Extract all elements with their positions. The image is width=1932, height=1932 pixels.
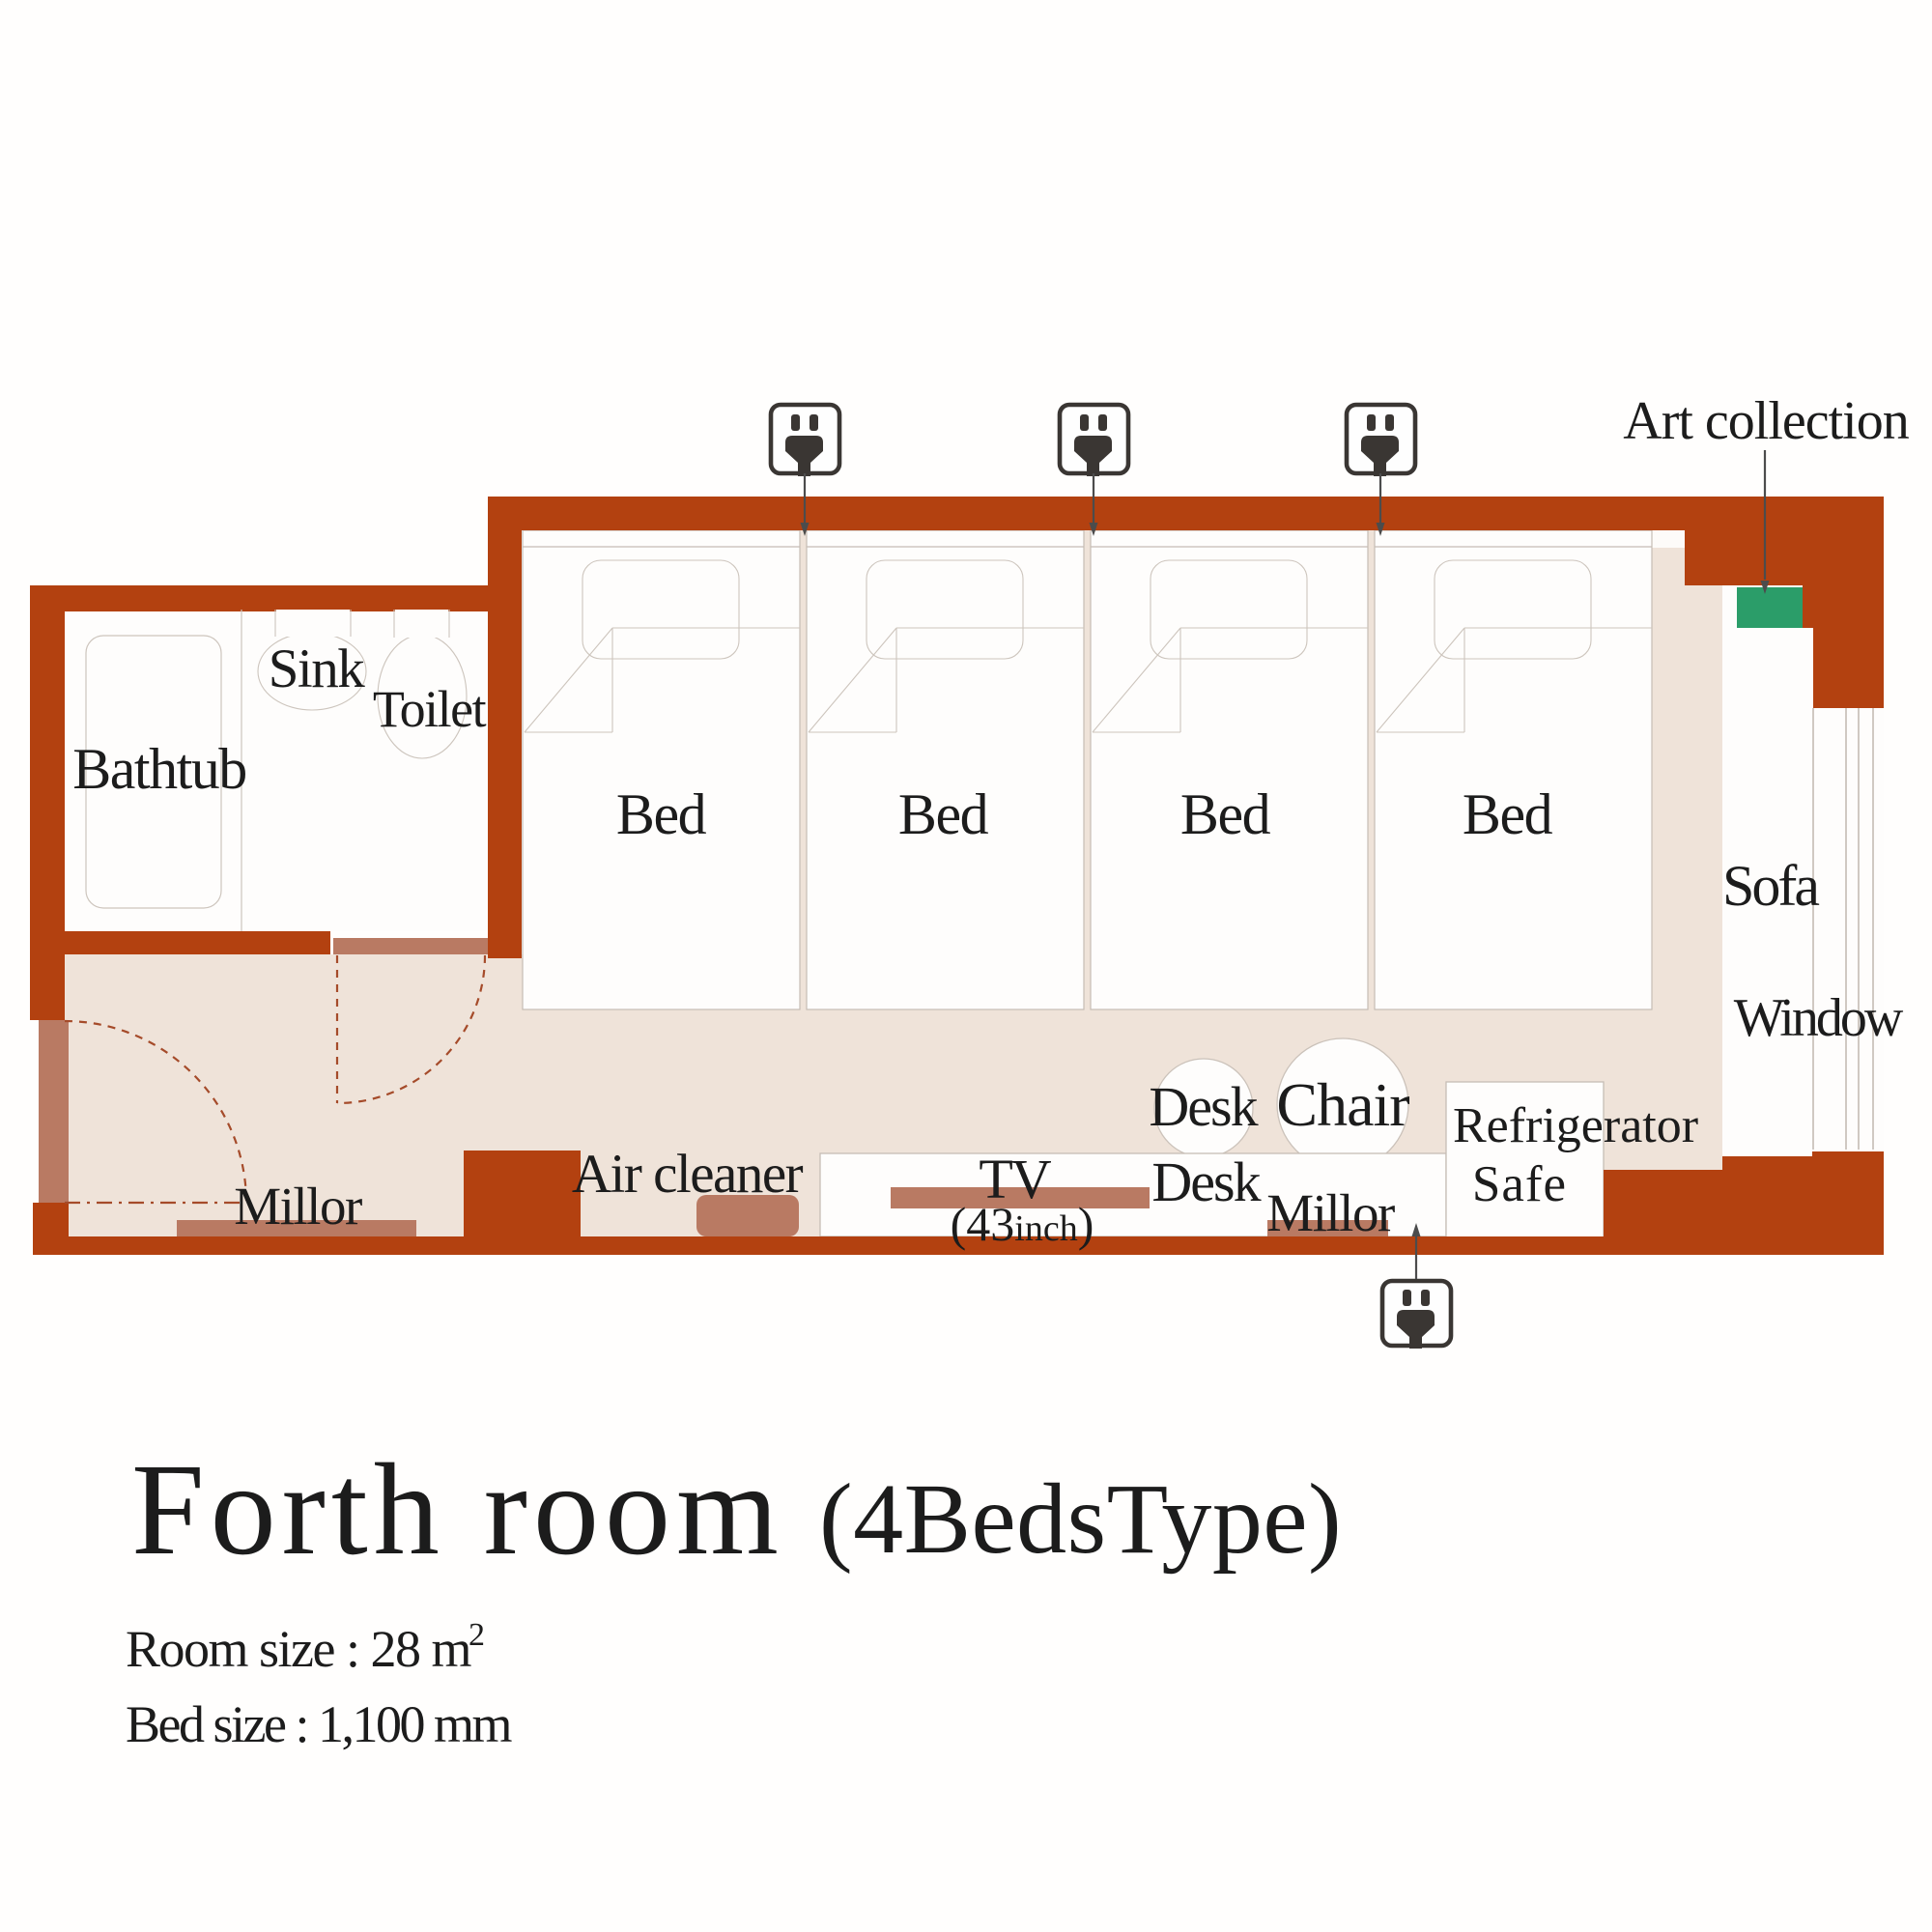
svg-text:Refrigerator: Refrigerator bbox=[1453, 1098, 1698, 1153]
svg-text:Desk: Desk bbox=[1149, 1075, 1258, 1138]
svg-text:Bed: Bed bbox=[1463, 782, 1553, 846]
svg-text:Air cleaner: Air cleaner bbox=[572, 1144, 804, 1205]
svg-text:Bed: Bed bbox=[898, 782, 989, 846]
svg-text:(4BedsType): (4BedsType) bbox=[819, 1463, 1342, 1575]
svg-text:Room size : 28 m2: Room size : 28 m2 bbox=[126, 1617, 484, 1678]
svg-text:Window: Window bbox=[1734, 988, 1904, 1048]
svg-text:Chair: Chair bbox=[1276, 1070, 1409, 1139]
svg-text:Forth room: Forth room bbox=[131, 1437, 784, 1582]
svg-text:Bed: Bed bbox=[616, 782, 707, 846]
svg-text:Bathtub: Bathtub bbox=[72, 737, 246, 801]
svg-text:Safe: Safe bbox=[1472, 1156, 1567, 1212]
svg-text:Bed: Bed bbox=[1180, 782, 1271, 846]
svg-text:Art collection: Art collection bbox=[1623, 391, 1909, 451]
svg-text:Bed size : 1,100 mm: Bed size : 1,100 mm bbox=[126, 1695, 512, 1753]
svg-text:Millor: Millor bbox=[234, 1177, 362, 1236]
svg-text:Sofa: Sofa bbox=[1722, 854, 1819, 918]
svg-text:Desk: Desk bbox=[1151, 1151, 1261, 1213]
svg-text:Millor: Millor bbox=[1266, 1183, 1395, 1242]
svg-text:Toilet: Toilet bbox=[373, 680, 487, 738]
svg-text:Sink: Sink bbox=[269, 639, 366, 699]
